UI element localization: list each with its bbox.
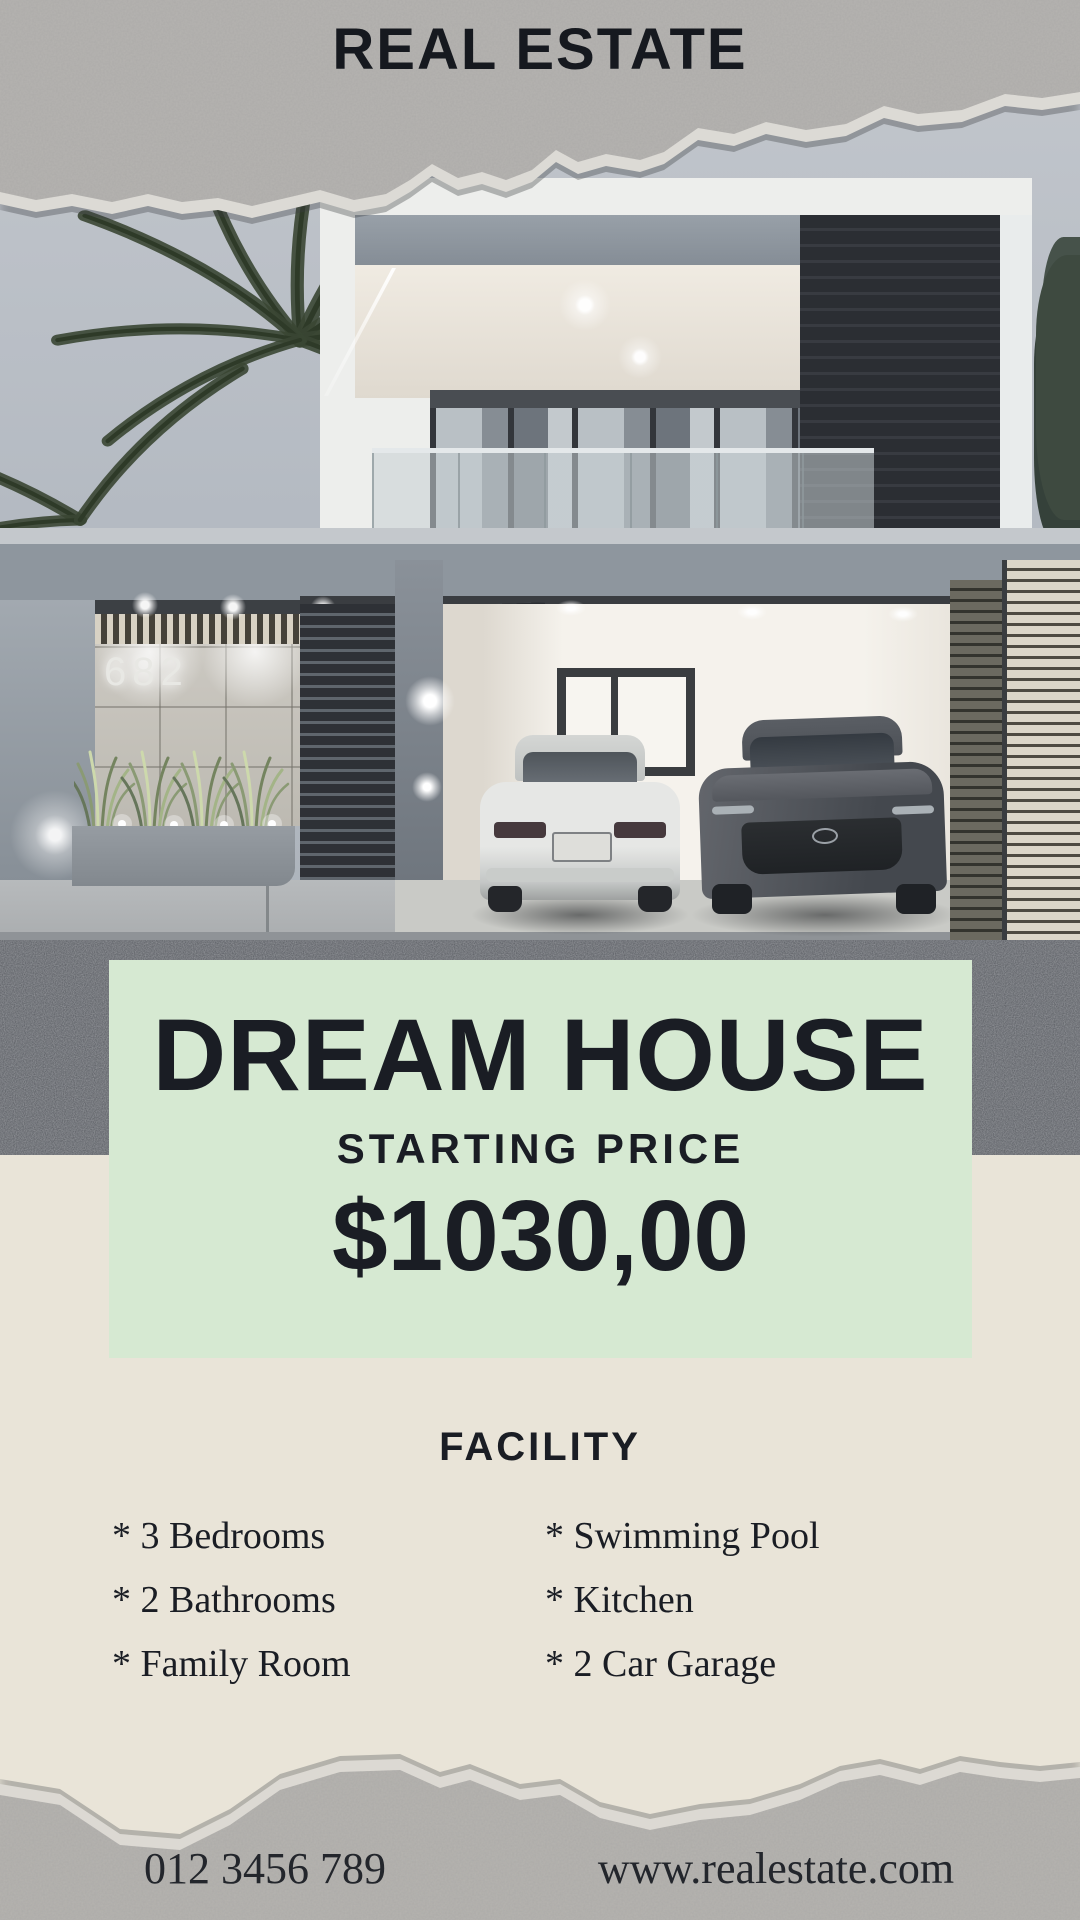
price-value: $1030,00 (109, 1186, 972, 1286)
facility-section: FACILITY * 3 Bedrooms * 2 Bathrooms * Fa… (0, 1425, 1080, 1470)
slat-canopy (95, 614, 300, 644)
dark-car-wheel (896, 884, 936, 914)
light-flare-icon (412, 772, 442, 802)
white-car-taillight (614, 822, 666, 838)
planter-box (72, 826, 295, 886)
house-number: 682 (104, 650, 224, 695)
list-item: * Swimming Pool (545, 1517, 820, 1555)
white-car-wheel (488, 886, 522, 912)
list-item: * 2 Car Garage (545, 1645, 820, 1683)
planter-grasses (74, 742, 296, 830)
white-car-wheel (638, 886, 672, 912)
dark-car-headlight (892, 805, 934, 814)
downlight-icon (888, 606, 918, 622)
downlight-icon (132, 592, 158, 618)
facility-list-left: * 3 Bedrooms * 2 Bathrooms * Family Room (112, 1517, 351, 1709)
list-item: * 2 Bathrooms (112, 1581, 351, 1619)
white-car-rear-window (523, 752, 637, 786)
white-car-plate (552, 832, 612, 862)
dream-house-heading: DREAM HOUSE (109, 1004, 972, 1106)
list-item: * Family Room (112, 1645, 351, 1683)
folding-door-right (1002, 560, 1080, 940)
starting-price-label: STARTING PRICE (109, 1128, 972, 1170)
entrance-soffit (95, 600, 300, 614)
white-car-bumper (486, 868, 674, 882)
website-url: www.realestate.com (556, 1843, 996, 1894)
downlight-icon (556, 600, 586, 616)
phone-number: 012 3456 789 (110, 1843, 420, 1894)
facility-heading: FACILITY (0, 1425, 1080, 1470)
tree-right (1036, 255, 1080, 520)
dark-car-headlight (712, 805, 754, 814)
page-title: REAL ESTATE (0, 16, 1080, 83)
downlight-icon (737, 604, 767, 620)
facility-list-right: * Swimming Pool * Kitchen * 2 Car Garage (545, 1517, 820, 1709)
list-item: * 3 Bedrooms (112, 1517, 351, 1555)
dark-car-grille (741, 817, 903, 875)
dark-car-wheel (712, 884, 752, 914)
list-item: * Kitchen (545, 1581, 820, 1619)
white-column (1000, 215, 1032, 540)
slatted-gate (300, 604, 395, 882)
real-estate-flyer: 682 (0, 0, 1080, 1920)
white-car-taillight (494, 822, 546, 838)
downlight-icon (220, 594, 246, 620)
folding-door-right (950, 580, 1002, 940)
price-panel: DREAM HOUSE STARTING PRICE $1030,00 (109, 960, 972, 1358)
wall-slab-band (0, 528, 1080, 600)
light-flare-icon (405, 676, 455, 726)
